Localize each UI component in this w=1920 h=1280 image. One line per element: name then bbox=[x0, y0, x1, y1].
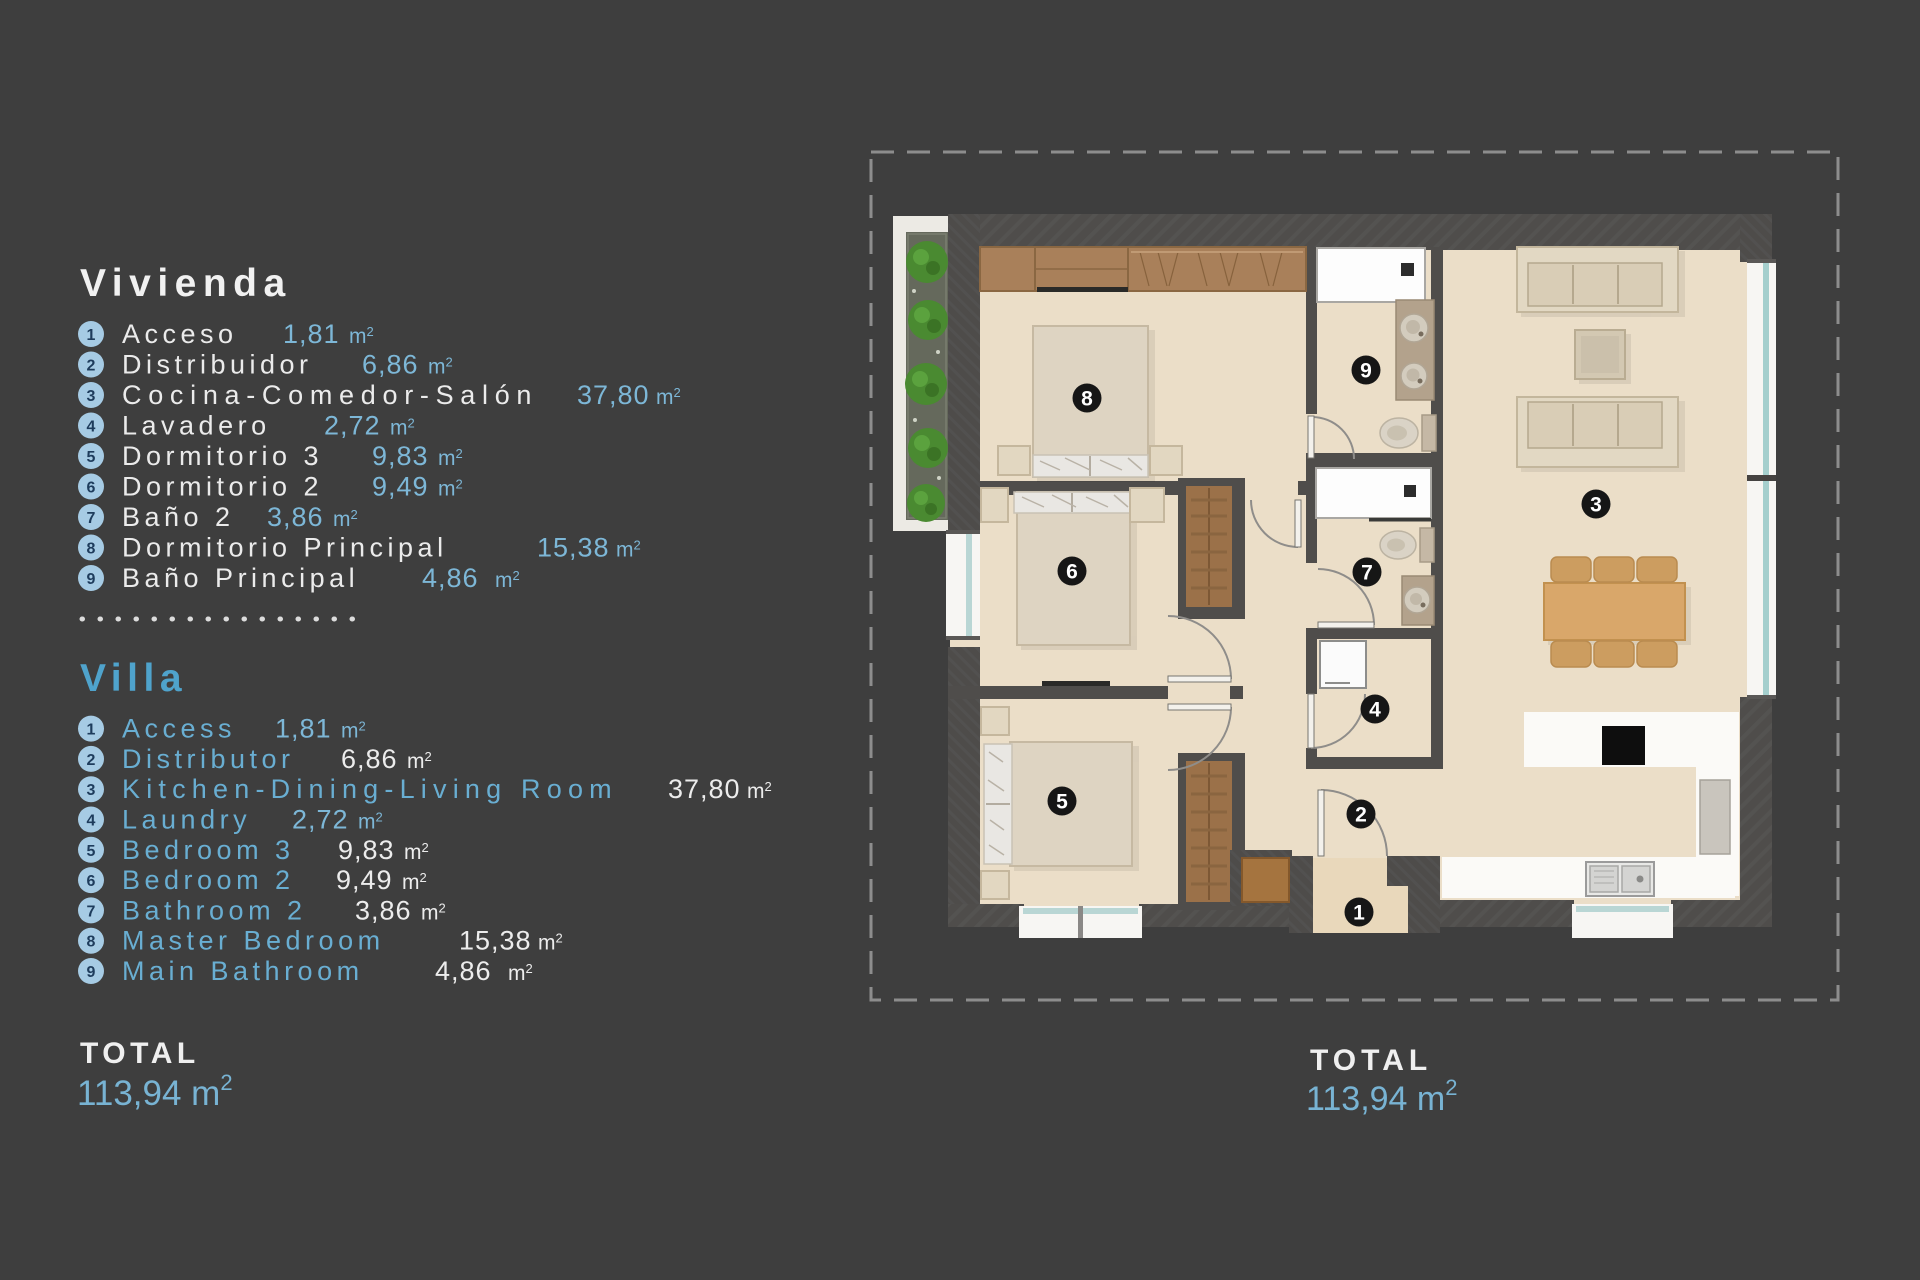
svg-text:5: 5 bbox=[1056, 791, 1068, 814]
svg-text:37,80: 37,80 bbox=[577, 380, 650, 410]
svg-text:1: 1 bbox=[87, 722, 96, 739]
svg-text:3: 3 bbox=[1590, 494, 1602, 517]
svg-text:Dormitorio Principal: Dormitorio Principal bbox=[122, 533, 448, 563]
svg-text:9,83: 9,83 bbox=[372, 441, 429, 471]
svg-text:Bedroom 2: Bedroom 2 bbox=[122, 865, 295, 895]
svg-text:3: 3 bbox=[87, 388, 96, 405]
svg-text:6: 6 bbox=[87, 873, 96, 890]
svg-text:Lavadero: Lavadero bbox=[122, 411, 271, 441]
svg-text:4,86: 4,86 bbox=[435, 956, 492, 986]
svg-text:6: 6 bbox=[1066, 561, 1078, 584]
svg-text:15,38: 15,38 bbox=[537, 533, 610, 563]
svg-text:Bedroom 3: Bedroom 3 bbox=[122, 835, 295, 865]
svg-text:Kitchen-Dining-Living Room: Kitchen-Dining-Living Room bbox=[122, 774, 618, 804]
svg-text:Laundry: Laundry bbox=[122, 805, 251, 835]
svg-text:9,49: 9,49 bbox=[372, 472, 429, 502]
svg-text:113,94 m2: 113,94 m2 bbox=[1306, 1075, 1458, 1118]
svg-text:5: 5 bbox=[87, 449, 96, 466]
svg-text:Baño 2: Baño 2 bbox=[122, 502, 235, 532]
svg-text:4: 4 bbox=[87, 813, 96, 830]
svg-text:1: 1 bbox=[87, 327, 96, 344]
svg-text:4,86: 4,86 bbox=[422, 563, 479, 593]
svg-text:7: 7 bbox=[87, 510, 96, 527]
svg-text:Distribuidor: Distribuidor bbox=[122, 350, 313, 380]
svg-text:15,38: 15,38 bbox=[459, 926, 532, 956]
svg-text:Acceso: Acceso bbox=[122, 319, 238, 349]
svg-text:2: 2 bbox=[1355, 804, 1367, 827]
svg-text:6: 6 bbox=[87, 480, 96, 497]
svg-text:5: 5 bbox=[87, 843, 96, 860]
svg-text:2: 2 bbox=[87, 358, 96, 375]
svg-text:Main Bathroom: Main Bathroom bbox=[122, 956, 364, 986]
svg-text:3,86: 3,86 bbox=[267, 502, 324, 532]
svg-text:Distributor: Distributor bbox=[122, 744, 295, 774]
svg-text:7: 7 bbox=[1361, 562, 1373, 585]
svg-text:113,94 m2: 113,94 m2 bbox=[77, 1070, 233, 1113]
svg-text:3,86: 3,86 bbox=[355, 895, 412, 925]
svg-text:3: 3 bbox=[87, 782, 96, 799]
svg-text:Bathroom 2: Bathroom 2 bbox=[122, 895, 307, 925]
svg-text:8: 8 bbox=[87, 541, 96, 558]
svg-text:2: 2 bbox=[87, 752, 96, 769]
svg-text:2,72: 2,72 bbox=[292, 805, 349, 835]
svg-text:8: 8 bbox=[87, 934, 96, 951]
svg-text:TOTAL: TOTAL bbox=[80, 1037, 200, 1070]
svg-text:Dormitorio 3: Dormitorio 3 bbox=[122, 441, 323, 471]
svg-text:Baño Principal: Baño Principal bbox=[122, 563, 359, 593]
svg-text:Cocina-Comedor-Salón: Cocina-Comedor-Salón bbox=[122, 380, 538, 410]
svg-text:Access: Access bbox=[122, 714, 236, 744]
svg-text:9,49: 9,49 bbox=[336, 865, 393, 895]
svg-text:6,86: 6,86 bbox=[362, 350, 419, 380]
svg-text:1,81: 1,81 bbox=[283, 319, 340, 349]
svg-text:8: 8 bbox=[1081, 388, 1093, 411]
svg-text:7: 7 bbox=[87, 903, 96, 920]
svg-text:37,80: 37,80 bbox=[668, 774, 741, 804]
svg-text:TOTAL: TOTAL bbox=[1310, 1044, 1432, 1077]
svg-text:6,86: 6,86 bbox=[341, 744, 398, 774]
svg-text:9,83: 9,83 bbox=[338, 835, 395, 865]
svg-text:Master Bedroom: Master Bedroom bbox=[122, 926, 385, 956]
svg-text:9: 9 bbox=[87, 964, 96, 981]
svg-text:9: 9 bbox=[1360, 360, 1372, 383]
svg-text:Villa: Villa bbox=[80, 657, 187, 700]
svg-text:9: 9 bbox=[87, 571, 96, 588]
svg-text:4: 4 bbox=[1369, 699, 1381, 722]
svg-text:Dormitorio 2: Dormitorio 2 bbox=[122, 472, 323, 502]
svg-text:4: 4 bbox=[87, 419, 96, 436]
svg-text:Vivienda: Vivienda bbox=[80, 262, 292, 305]
svg-text:1: 1 bbox=[1353, 902, 1365, 925]
svg-text:2,72: 2,72 bbox=[324, 411, 381, 441]
svg-text:1,81: 1,81 bbox=[275, 714, 332, 744]
